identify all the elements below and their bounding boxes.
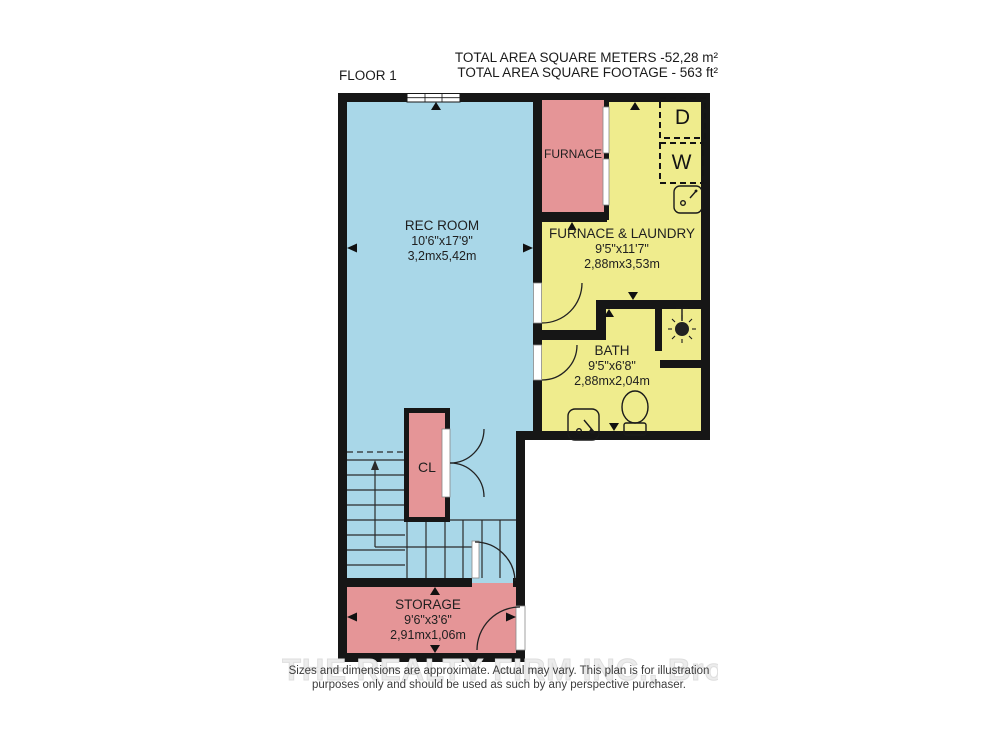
rec-room-size-metric: 3,2mx5,42m	[367, 249, 517, 264]
window-icon	[407, 94, 460, 103]
floor-plan-page: TOTAL AREA SQUARE METERS -52,28 m² TOTAL…	[0, 0, 1000, 737]
washer-label: W	[660, 151, 703, 175]
disclaimer-line-1: Sizes and dimensions are approximate. Ac…	[283, 664, 715, 678]
closet-label: CL	[409, 459, 445, 475]
total-area-block: TOTAL AREA SQUARE METERS -52,28 m² TOTAL…	[455, 50, 718, 80]
total-area-feet: TOTAL AREA SQUARE FOOTAGE - 563 ft²	[455, 65, 718, 80]
total-area-meters: TOTAL AREA SQUARE METERS -52,28 m²	[455, 50, 718, 65]
rec-room-size-imperial: 10'6"x17'9"	[367, 234, 517, 249]
disclaimer: Sizes and dimensions are approximate. Ac…	[283, 664, 715, 692]
furnace-laundry-size-metric: 2,88mx3,53m	[546, 257, 698, 272]
floor-plan: REC ROOM 10'6"x17'9" 3,2mx5,42m FURNACE …	[338, 93, 710, 662]
storage-label: STORAGE 9'6"x3'6" 2,91mx1,06m	[353, 597, 503, 643]
bath-name: BATH	[551, 343, 673, 359]
rec-room-name: REC ROOM	[367, 218, 517, 234]
rec-room-label: REC ROOM 10'6"x17'9" 3,2mx5,42m	[367, 218, 517, 264]
storage-size-metric: 2,91mx1,06m	[353, 628, 503, 643]
bath-size-metric: 2,88mx2,04m	[551, 374, 673, 389]
bath-size-imperial: 9'5"x6'8"	[551, 359, 673, 374]
furnace-laundry-name: FURNACE & LAUNDRY	[546, 226, 698, 242]
storage-size-imperial: 9'6"x3'6"	[353, 613, 503, 628]
floor-title: FLOOR 1	[339, 68, 397, 83]
furnace-laundry-size-imperial: 9'5"x11'7"	[546, 242, 698, 257]
furnace-laundry-label: FURNACE & LAUNDRY 9'5"x11'7" 2,88mx3,53m	[546, 226, 698, 272]
dryer-label: D	[660, 106, 705, 130]
disclaimer-line-2: purposes only and should be used as such…	[283, 678, 715, 692]
furnace-label: FURNACE	[542, 147, 604, 161]
bath-label: BATH 9'5"x6'8" 2,88mx2,04m	[551, 343, 673, 389]
storage-name: STORAGE	[353, 597, 503, 613]
